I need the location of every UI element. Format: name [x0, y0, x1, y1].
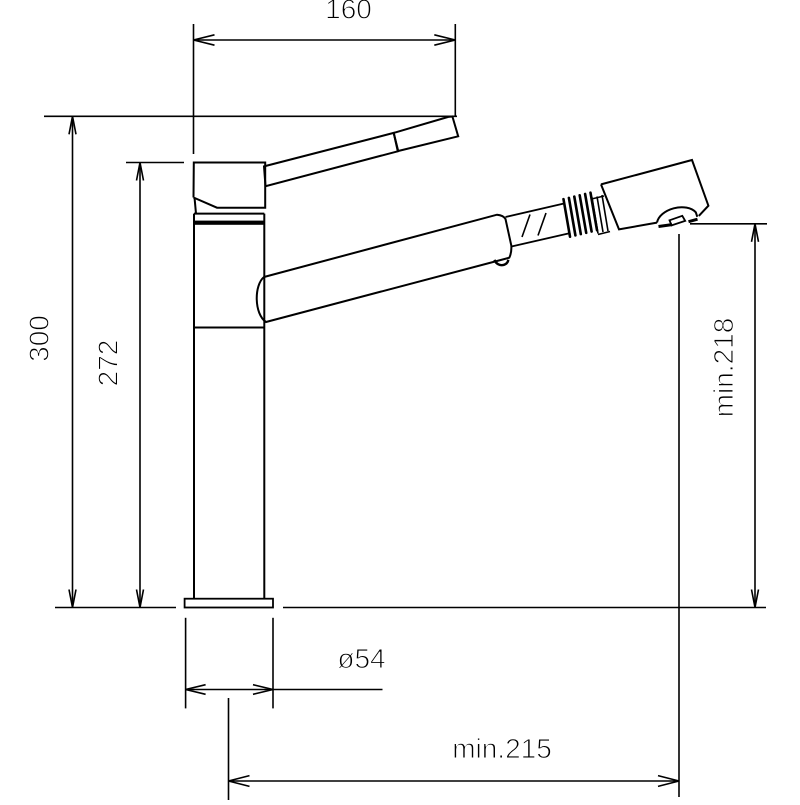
svg-text:272: 272	[93, 340, 124, 387]
svg-text:160: 160	[325, 0, 372, 25]
svg-text:ø54: ø54	[337, 643, 385, 674]
svg-text:300: 300	[24, 315, 55, 362]
svg-text:min.215: min.215	[452, 733, 552, 764]
svg-text:min.218: min.218	[708, 318, 739, 418]
